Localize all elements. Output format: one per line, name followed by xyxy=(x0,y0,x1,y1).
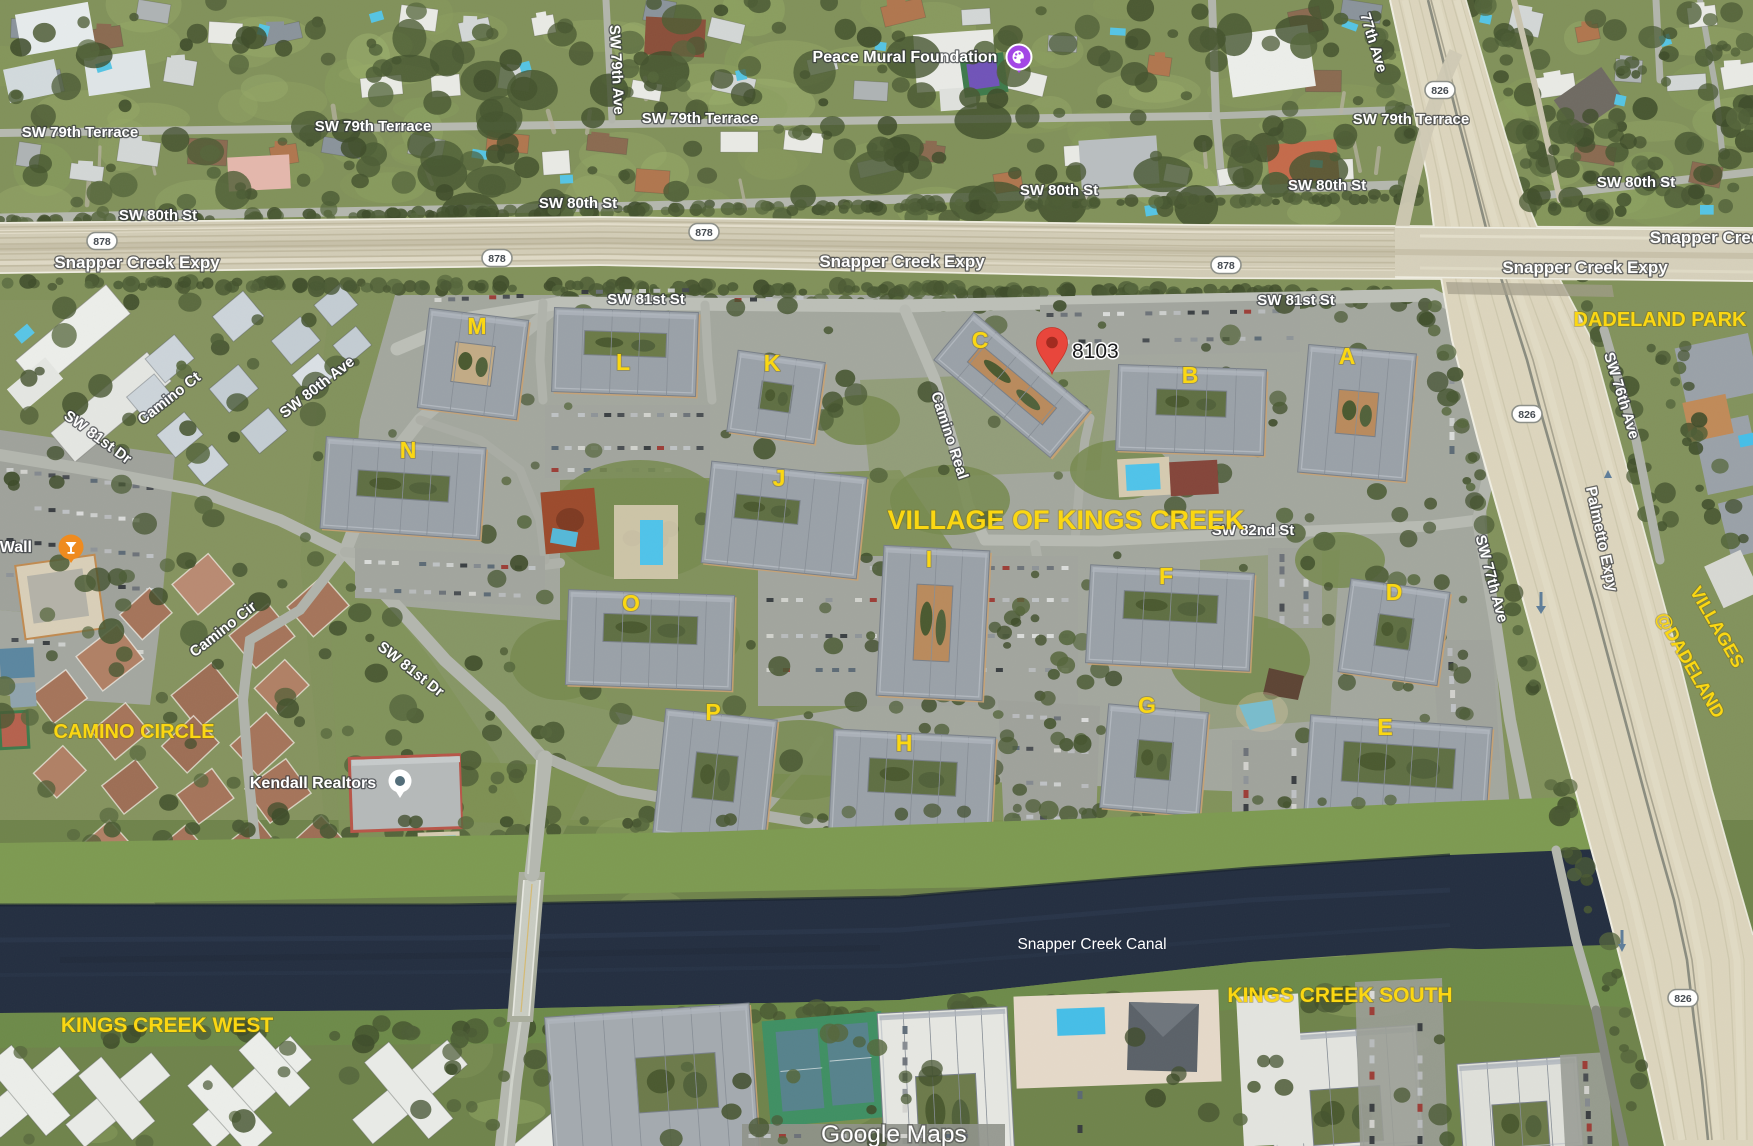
svg-text:SW 79th Terrace: SW 79th Terrace xyxy=(22,124,138,141)
svg-text:SW 79th Terrace: SW 79th Terrace xyxy=(1353,111,1469,128)
svg-text:VILLAGE OF KINGS CREEK: VILLAGE OF KINGS CREEK xyxy=(887,505,1245,535)
svg-text:Snapper Cree: Snapper Cree xyxy=(1650,228,1753,247)
svg-text:CAMINO CIRCLE: CAMINO CIRCLE xyxy=(53,721,214,743)
svg-text:E: E xyxy=(1377,714,1392,740)
svg-text:B: B xyxy=(1182,362,1199,388)
svg-text:DADELAND PARK: DADELAND PARK xyxy=(1574,309,1748,331)
svg-text:878: 878 xyxy=(488,253,506,265)
svg-text:H: H xyxy=(896,730,913,756)
svg-text:P: P xyxy=(705,699,720,725)
svg-text:A: A xyxy=(1339,343,1356,369)
svg-text:SW 81st St: SW 81st St xyxy=(1257,292,1335,309)
svg-text:C: C xyxy=(972,327,989,353)
svg-text:SW 80th St: SW 80th St xyxy=(1020,182,1098,199)
svg-text:Snapper Creek Expy: Snapper Creek Expy xyxy=(1502,258,1668,277)
svg-text:KINGS CREEK WEST: KINGS CREEK WEST xyxy=(61,1014,274,1037)
svg-text:SW 80th St: SW 80th St xyxy=(1597,174,1675,191)
svg-text:878: 878 xyxy=(1217,260,1235,272)
svg-text:K: K xyxy=(764,350,781,376)
svg-text:Kendall Realtors: Kendall Realtors xyxy=(250,775,376,792)
svg-text:SW 79th Terrace: SW 79th Terrace xyxy=(642,110,758,127)
svg-text:SW 80th St: SW 80th St xyxy=(1288,177,1366,194)
svg-text:M: M xyxy=(467,313,486,339)
svg-text:J: J xyxy=(773,465,786,491)
svg-text:G: G xyxy=(1138,692,1156,718)
svg-text:826: 826 xyxy=(1674,993,1692,1005)
svg-text:SW 79th Terrace: SW 79th Terrace xyxy=(315,118,431,135)
svg-text:SW 81st St: SW 81st St xyxy=(607,291,685,308)
svg-text:L: L xyxy=(616,349,630,375)
svg-text:Snapper Creek Expy: Snapper Creek Expy xyxy=(54,253,220,272)
svg-text:F: F xyxy=(1159,563,1173,589)
svg-text:Snapper Creek Canal: Snapper Creek Canal xyxy=(1017,936,1166,953)
svg-text:8103: 8103 xyxy=(1072,340,1119,363)
svg-text:826: 826 xyxy=(1431,85,1449,97)
svg-text:N: N xyxy=(400,437,417,463)
svg-text:Peace Mural Foundation: Peace Mural Foundation xyxy=(813,49,998,66)
svg-text:826: 826 xyxy=(1518,409,1536,421)
svg-text:O: O xyxy=(622,590,640,616)
svg-text:878: 878 xyxy=(93,236,111,248)
svg-text:878: 878 xyxy=(695,227,713,239)
svg-text:D: D xyxy=(1386,579,1403,605)
svg-text:SW 80th St: SW 80th St xyxy=(539,195,617,212)
svg-text:Snapper Creek Expy: Snapper Creek Expy xyxy=(819,252,985,271)
svg-text:Google Maps: Google Maps xyxy=(821,1121,967,1146)
svg-text:I: I xyxy=(926,546,932,572)
svg-text:KINGS CREEK SOUTH: KINGS CREEK SOUTH xyxy=(1227,984,1452,1007)
svg-text:SW 80th St: SW 80th St xyxy=(119,207,197,224)
svg-text:e Wall: e Wall xyxy=(0,539,32,556)
